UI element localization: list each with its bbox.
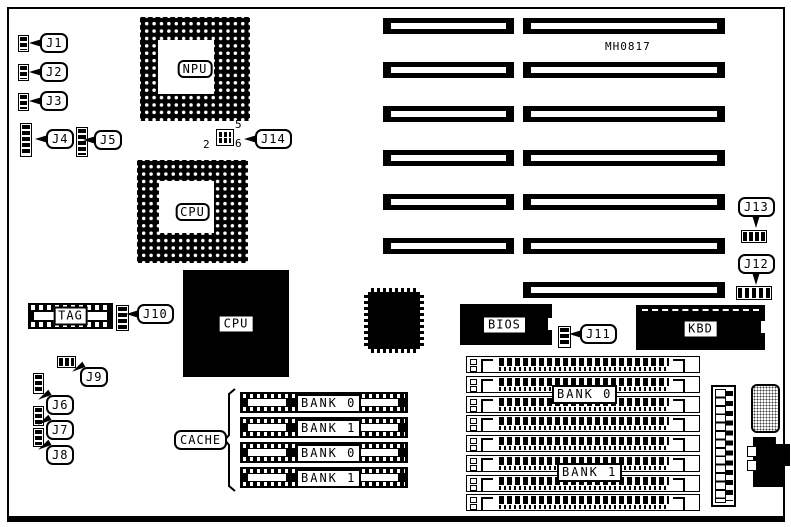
cache-row-slot [248, 399, 286, 406]
power-connector [711, 385, 736, 507]
jumper-j1-label: J1 [40, 33, 68, 53]
jumper-j8-label: J8 [46, 445, 74, 465]
jumper-j2-connector [18, 64, 29, 81]
tag-ram-socket: TAG [28, 303, 113, 329]
cpu-chip: CPU [183, 270, 289, 377]
jumper-j3-label: J3 [40, 91, 68, 111]
kbd-chip-label: KBD [684, 322, 717, 337]
isa-slot [383, 18, 514, 34]
jumper-j13-connector [741, 230, 767, 243]
kbd-chip-dash [642, 309, 759, 311]
jumper-j14-label: J14 [255, 129, 292, 149]
j14-pin6-number: 6 [235, 137, 242, 150]
qfp-chip [364, 288, 424, 353]
bios-chip-label: BIOS [484, 317, 525, 332]
isa-slot [383, 194, 514, 210]
cpu-socket-label: CPU [175, 203, 210, 221]
cache-row-slot [356, 449, 398, 456]
qfp-pins-top [371, 288, 417, 293]
simm-socket [466, 415, 700, 432]
memory-bank0-label: BANK 0 [552, 385, 617, 404]
cache-row-slot [356, 474, 398, 481]
din-connector-tab [747, 446, 757, 457]
cache-row-slot [356, 399, 398, 406]
kbd-chip-notch [761, 321, 765, 333]
cache-row-slot [248, 474, 286, 481]
cpu-chip-label: CPU [220, 316, 253, 331]
qfp-pins-right [419, 295, 424, 346]
jumper-j7-label: J7 [46, 420, 74, 440]
jumper-j12-connector [736, 286, 772, 300]
jumper-j10-label: J10 [137, 304, 174, 324]
simm-socket [466, 435, 700, 452]
jumper-j6-connector [33, 373, 44, 394]
memory-bank1-label: BANK 1 [557, 463, 622, 482]
isa-slot [383, 106, 514, 122]
cache-row-slot [248, 424, 286, 431]
j14-pin2-number: 2 [203, 138, 210, 151]
bios-chip: BIOS [460, 304, 552, 345]
bios-chip-notch [548, 318, 552, 330]
kbd-chip: KBD [636, 305, 765, 350]
jumper-j13-label: J13 [738, 197, 775, 217]
cache-bank1-label: BANK 1 [296, 469, 361, 488]
jumper-j4-connector [20, 123, 32, 157]
jumper-j1-connector [18, 35, 29, 52]
jumper-j12-label: J12 [738, 254, 775, 274]
jumper-j10-connector [116, 305, 129, 331]
jumper-j2-label: J2 [40, 62, 68, 82]
cache-bank1-label: BANK 1 [296, 419, 361, 438]
filter-component [751, 384, 780, 433]
part-number: MH0817 [605, 40, 651, 53]
isa-slot [523, 194, 725, 210]
cache-row-slot [248, 449, 286, 456]
isa-slot [523, 106, 725, 122]
jumper-j4-label: J4 [46, 129, 74, 149]
isa-slot [383, 150, 514, 166]
j14-pin5-number: 5 [235, 118, 242, 131]
cache-bank0-label: BANK 0 [296, 394, 361, 413]
npu-socket-label: NPU [178, 60, 213, 78]
cache-row-slot [356, 424, 398, 431]
jumper-j6-label: J6 [46, 395, 74, 415]
qfp-pins-left [364, 295, 369, 346]
motherboard-diagram: J1 J2 J3 J4 J5 NPU CPU 5 2 6 J14 MH0817 … [0, 0, 791, 527]
cache-label: CACHE [174, 430, 227, 450]
jumper-j14-connector [216, 129, 234, 146]
simm-socket [466, 494, 700, 511]
din-connector-tab [747, 460, 757, 471]
isa-slot [523, 238, 725, 254]
cache-bank0-label: BANK 0 [296, 444, 361, 463]
qfp-pins-bottom [371, 348, 417, 353]
qfp-chip-body [368, 292, 420, 349]
simm-socket [466, 356, 700, 373]
isa-slot [523, 18, 725, 34]
isa-slot [523, 150, 725, 166]
isa-slot [383, 238, 514, 254]
jumper-j9-label: J9 [80, 367, 108, 387]
jumper-j3-connector [18, 93, 29, 111]
isa-slot [523, 282, 725, 298]
cpu-upgrade-socket: CPU [137, 160, 248, 263]
jumper-j11-label: J11 [580, 324, 617, 344]
isa-slot [383, 62, 514, 78]
npu-socket: NPU [140, 17, 250, 121]
tag-label: TAG [53, 307, 88, 326]
jumper-j5-label: J5 [94, 130, 122, 150]
isa-slot [523, 62, 725, 78]
